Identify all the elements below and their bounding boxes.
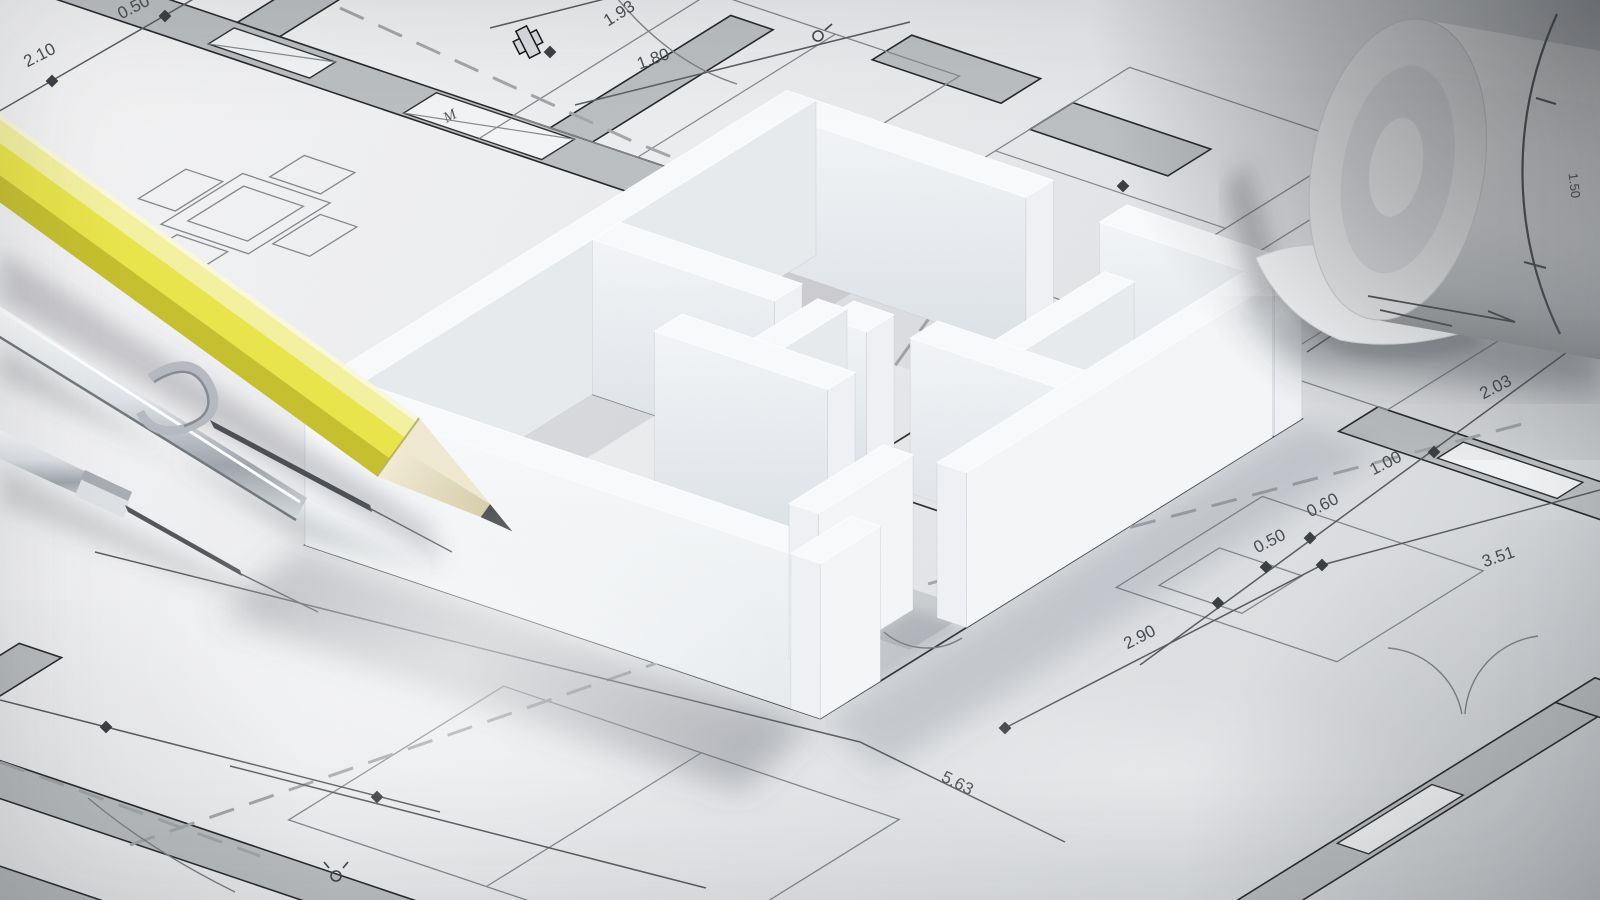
scene-canvas: 2.10 0.50 1.93 1.80 1.93 2.03 1.00 0.60 … — [0, 0, 1600, 900]
paper-grain-texture — [0, 0, 1600, 900]
photo-scene: 2.10 0.50 1.93 1.80 1.93 2.03 1.00 0.60 … — [0, 0, 1600, 900]
